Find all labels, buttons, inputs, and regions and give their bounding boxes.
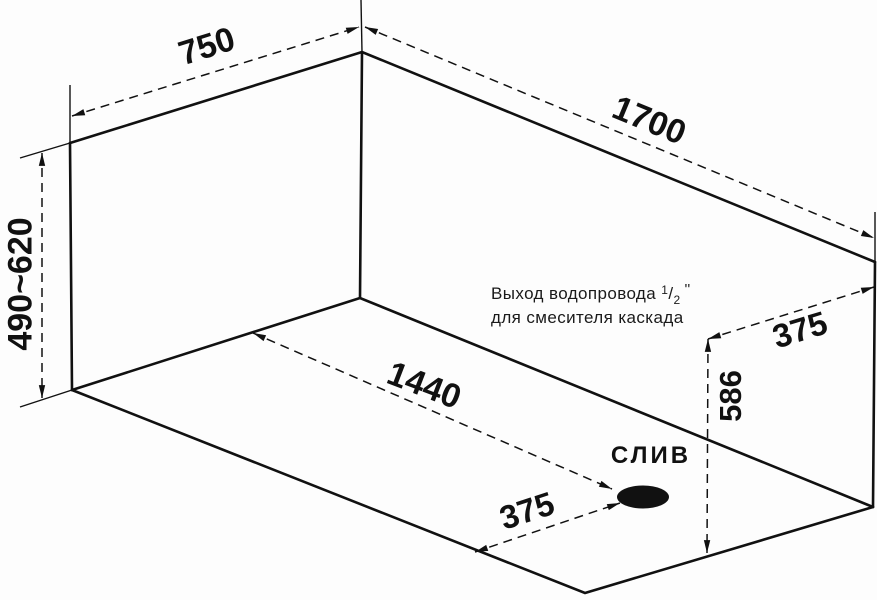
tub-edges xyxy=(70,52,875,593)
extension-lines xyxy=(20,0,875,407)
dimension-line-1700 xyxy=(365,27,874,238)
tub-floor-back-edges xyxy=(72,298,873,507)
drain-label: СЛИВ xyxy=(611,442,691,470)
extension-left-lower xyxy=(20,390,72,407)
dimension-label-height-range: 490~620 xyxy=(2,217,41,350)
tub-right-vertical-edge xyxy=(873,262,875,507)
dimension-lines xyxy=(42,27,874,553)
dimension-line-586 xyxy=(707,339,708,553)
extension-top-center xyxy=(361,0,362,52)
extension-left-upper xyxy=(20,143,70,158)
outlet-size-inch-marks: '' xyxy=(681,281,691,298)
water-outlet-note: Выход водопровода 1/2'' для смесителя ка… xyxy=(491,281,690,326)
tub-left-vertical-edge xyxy=(70,143,72,390)
tub-floor-front-edges xyxy=(72,390,873,593)
dimension-label-586: 586 xyxy=(713,370,749,422)
drain-hole xyxy=(617,486,669,509)
dimension-line-1440 xyxy=(253,333,612,489)
water-outlet-note-line2: для смесителя каскада xyxy=(491,308,684,327)
diagram-linework xyxy=(0,0,877,600)
tub-rim-back-edges xyxy=(70,52,875,262)
tub-middle-vertical-edge xyxy=(360,52,362,298)
outlet-size-denominator: 2 xyxy=(673,293,680,307)
water-outlet-note-line1: Выход водопровода 1/2'' xyxy=(491,284,690,303)
bathtub-dimension-diagram: 750 1700 490~620 1440 375 375 586 СЛИВ В… xyxy=(0,0,877,600)
